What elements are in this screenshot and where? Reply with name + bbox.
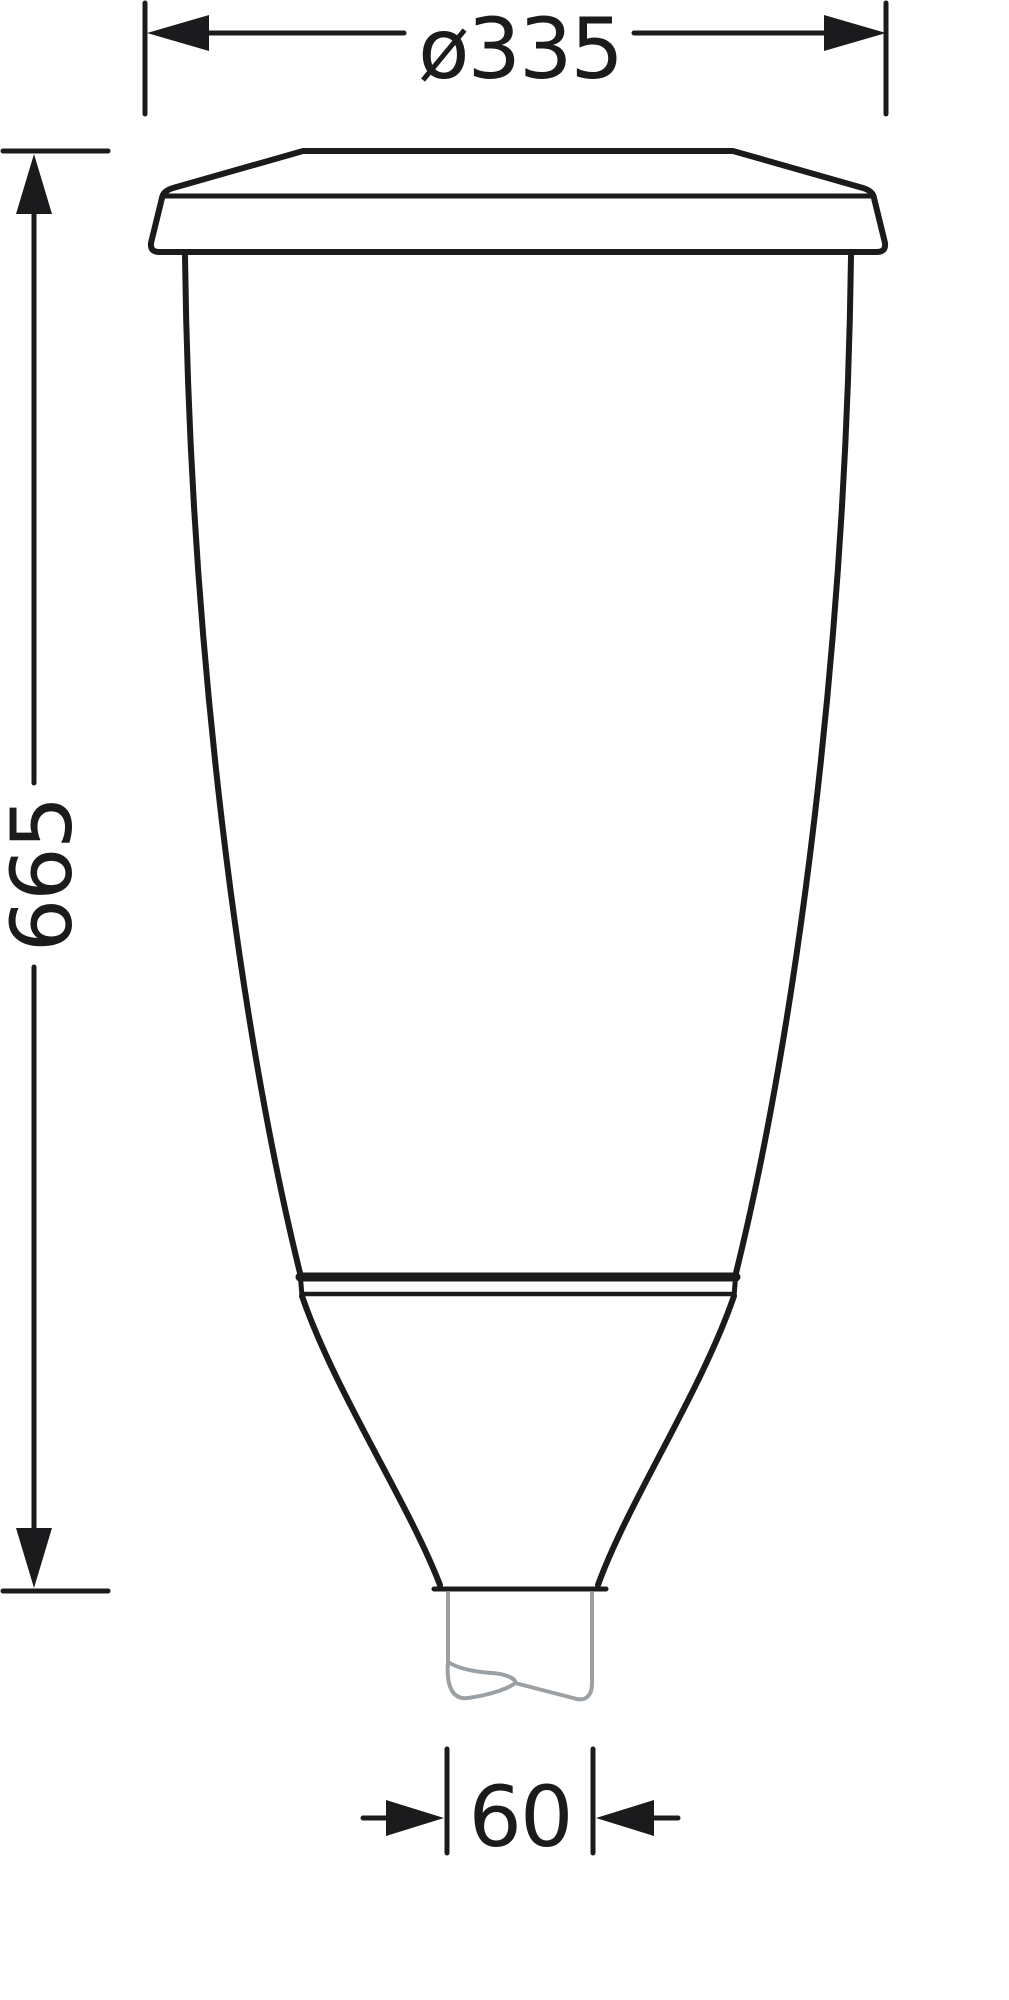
height-arrow-down-icon	[16, 1528, 52, 1588]
spigot-dimension: 60	[363, 1749, 678, 1866]
funnel-left-edge	[302, 1296, 440, 1585]
spigot-label: 60	[469, 1768, 572, 1866]
height-dimension: 665	[0, 151, 108, 1591]
luminaire-outline	[151, 151, 885, 1589]
diameter-arrow-left-icon	[147, 15, 209, 51]
body-left-edge	[185, 256, 300, 1273]
height-arrow-up-icon	[16, 154, 52, 214]
pole-break-flap	[448, 1662, 516, 1698]
diameter-label: ø335	[418, 0, 622, 98]
spigot-arrow-left-pointing-icon	[596, 1800, 654, 1836]
funnel-right-edge	[598, 1296, 734, 1585]
band-left-side	[300, 1272, 302, 1296]
dimension-drawing-svg: ø335 665 60	[0, 0, 1009, 2000]
band-right-side	[734, 1272, 736, 1296]
diameter-arrow-right-icon	[824, 15, 886, 51]
cap-outline	[151, 151, 885, 252]
pole-stub	[448, 1593, 592, 1699]
height-label: 665	[0, 798, 91, 952]
drawing-canvas: ø335 665 60	[0, 0, 1009, 2000]
pole-break-diagonal	[515, 1683, 577, 1699]
spigot-arrow-right-pointing-icon	[386, 1800, 444, 1836]
diameter-dimension: ø335	[145, 0, 886, 114]
pole-break-right-curve	[577, 1684, 592, 1699]
body-right-edge	[736, 256, 851, 1273]
